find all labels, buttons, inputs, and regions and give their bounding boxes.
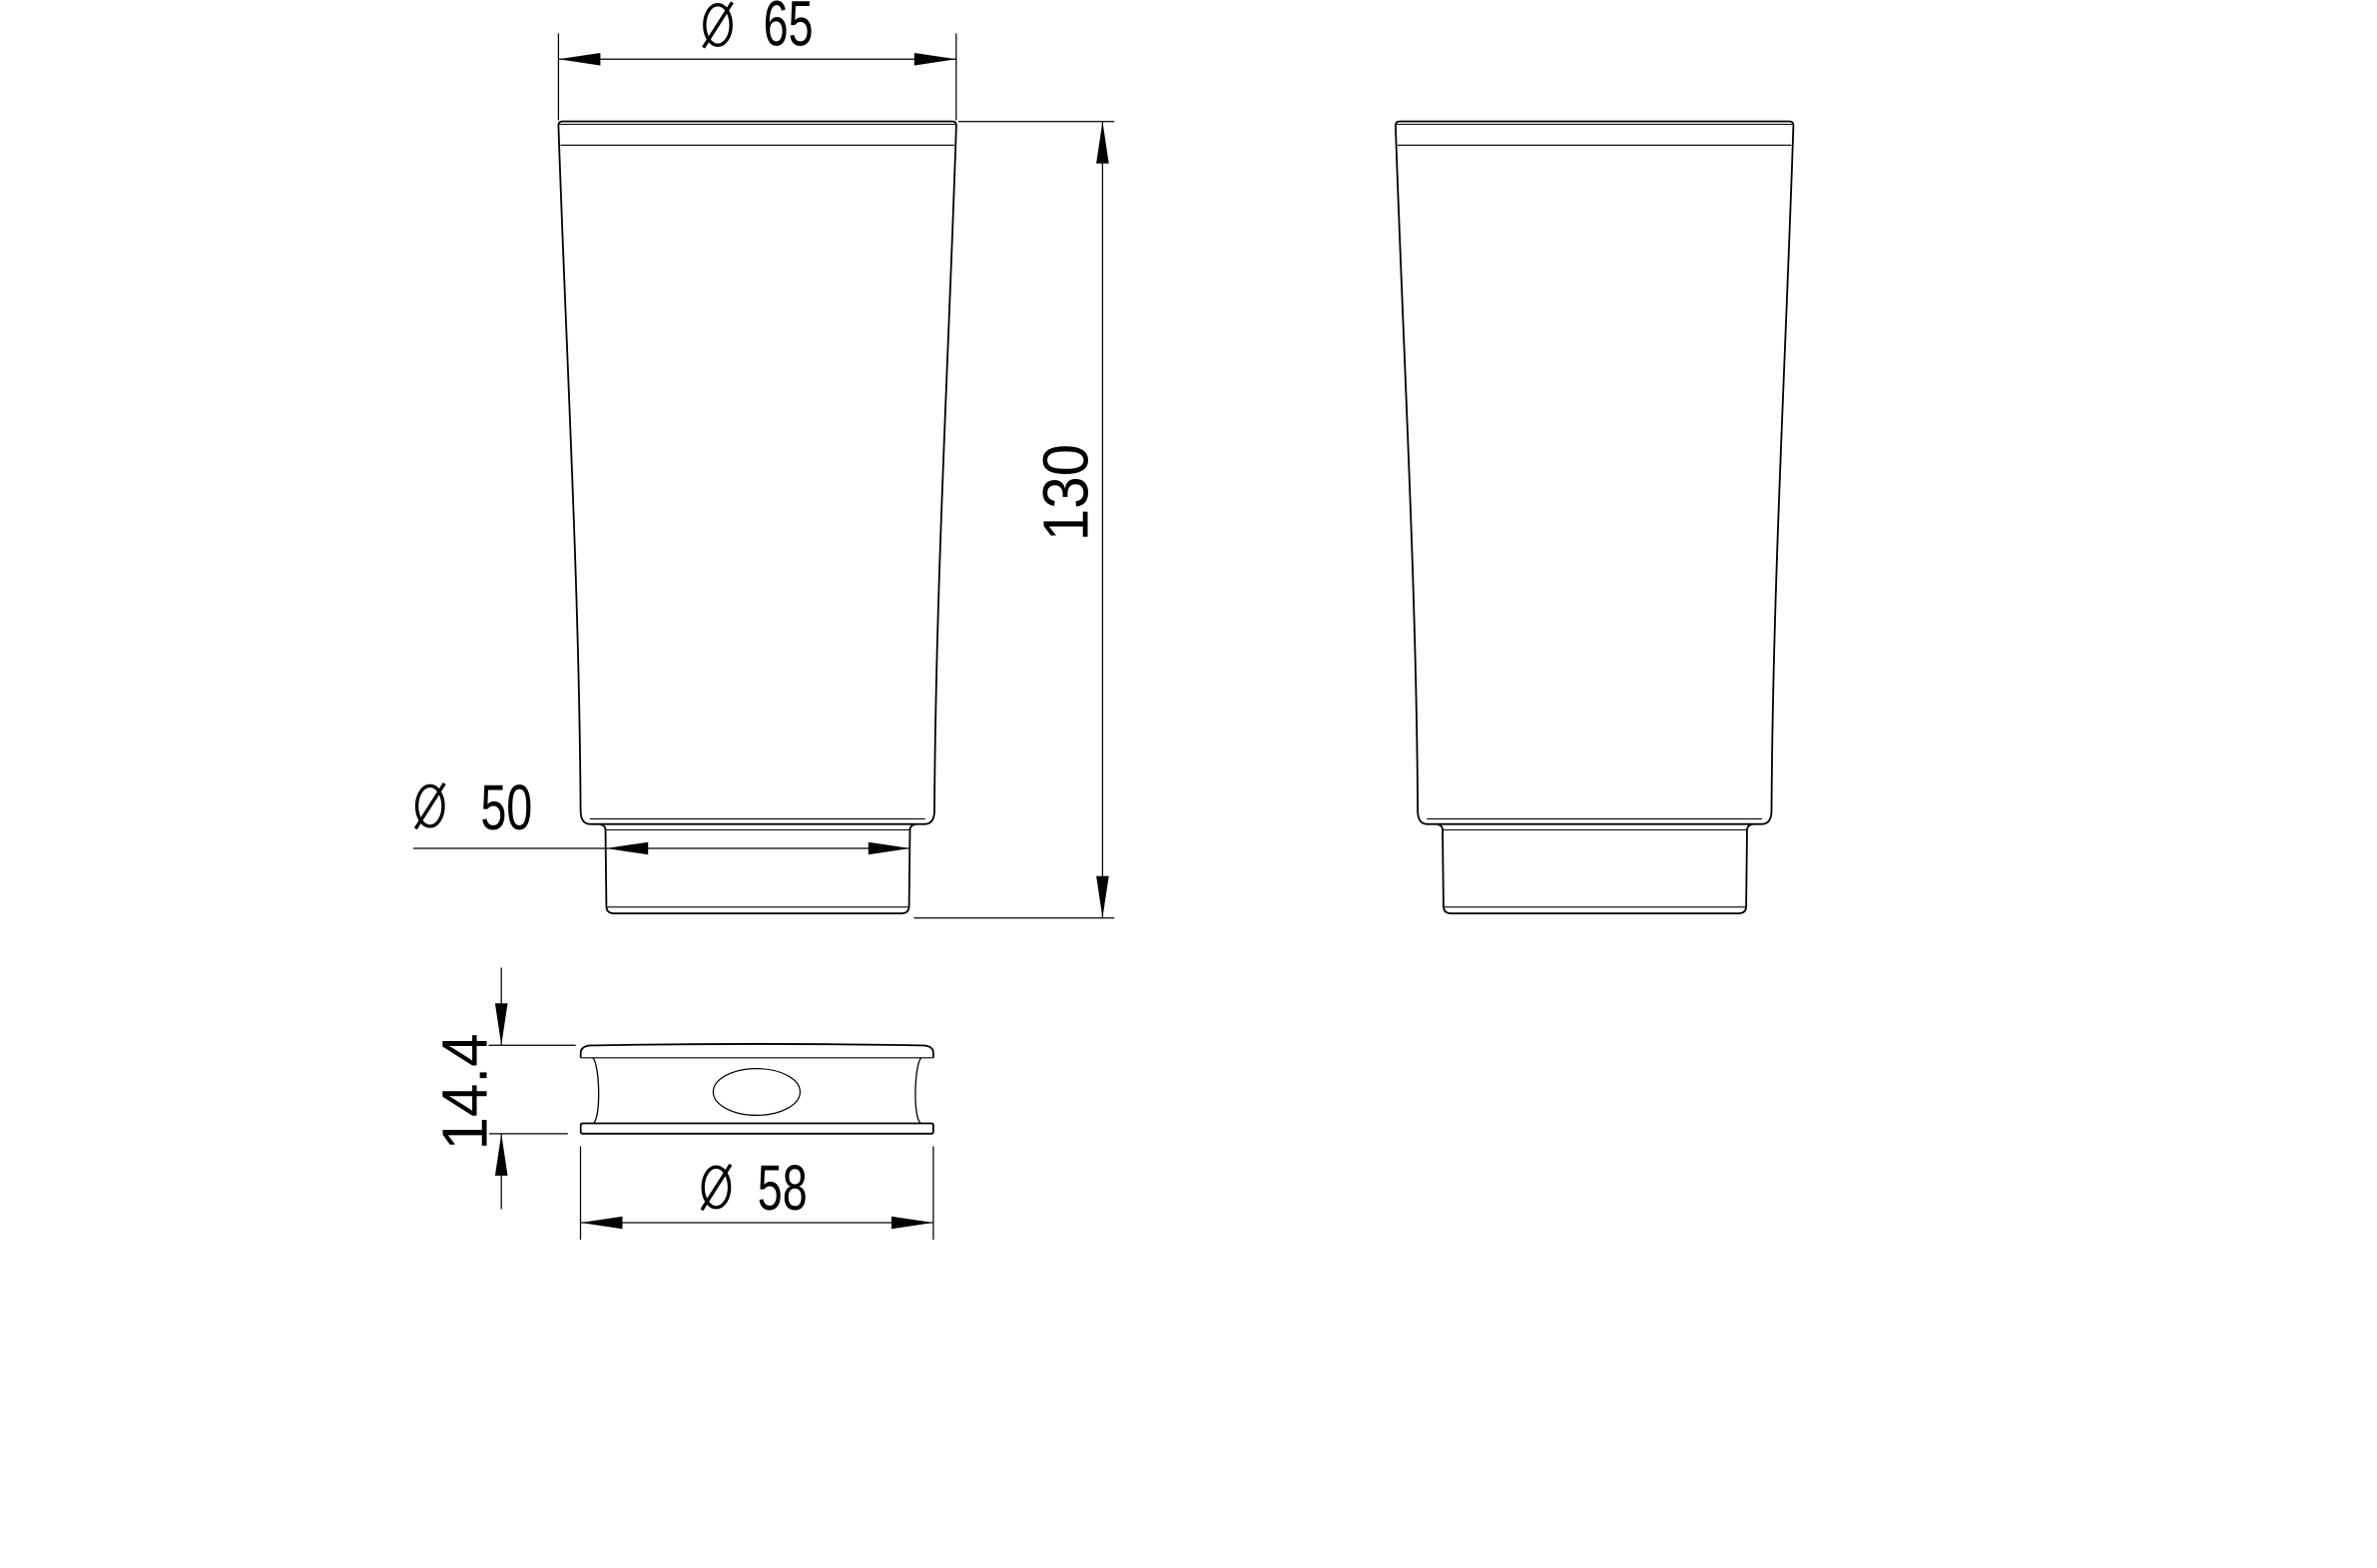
svg-text:50: 50 — [480, 772, 532, 843]
svg-text:130: 130 — [1030, 444, 1101, 541]
svg-text:14.4: 14.4 — [430, 1033, 501, 1150]
svg-text:58: 58 — [758, 1152, 808, 1224]
svg-text:65: 65 — [764, 0, 814, 59]
